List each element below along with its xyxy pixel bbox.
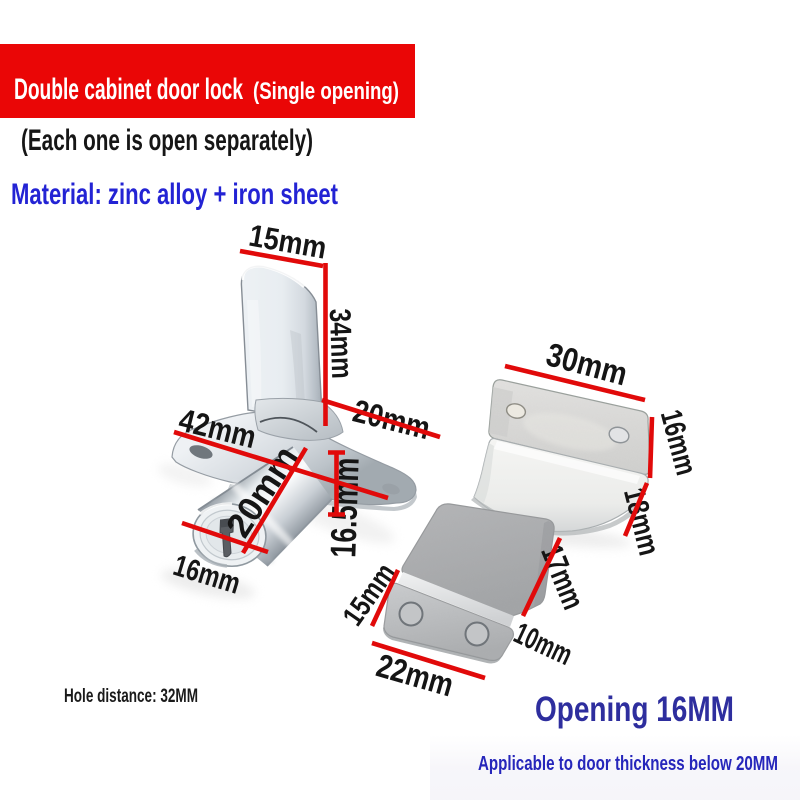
svg-text:(Each one is open separately): (Each one is open separately) [21, 124, 313, 157]
svg-text:Double cabinet door lock: Double cabinet door lock [14, 73, 243, 106]
svg-text:16.5mm: 16.5mm [322, 457, 366, 558]
svg-text:34mm: 34mm [323, 308, 358, 379]
svg-text:(Single opening): (Single opening) [253, 78, 399, 105]
svg-text:Hole distance: 32MM: Hole distance: 32MM [64, 686, 198, 707]
svg-text:Applicable to door thickness b: Applicable to door thickness below 20MM [478, 753, 778, 775]
svg-text:Opening 16MM: Opening 16MM [535, 690, 734, 729]
svg-text:Material: zinc alloy + iron sh: Material: zinc alloy + iron sheet [11, 178, 338, 211]
